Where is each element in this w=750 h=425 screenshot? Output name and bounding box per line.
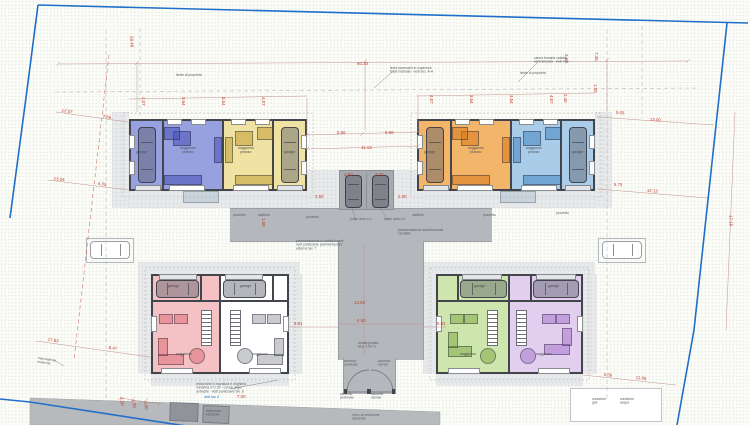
annotation-label: canna fumaria caldaia centralizzata - ve… <box>534 56 569 64</box>
dimension-label: 3.54 <box>181 97 186 106</box>
dimension-label: 2.50 <box>119 397 125 406</box>
annotation-label: linea lucernario in copertura falda incl… <box>390 66 433 74</box>
annotation-label: vedi tav. 8 <box>204 395 219 399</box>
annotation-label: fabbricato esistente <box>206 409 221 417</box>
room-label: soggiorno pranzo <box>180 146 196 154</box>
dimension-label: 4.07 <box>429 95 434 104</box>
annotation-label: caditoia <box>258 213 270 217</box>
room-label: soggiorno <box>252 352 268 356</box>
site-plan: 60.3029.4812.077.6613.044.335.6513.005.7… <box>0 0 750 425</box>
annotation-label: limite di proprieta' <box>520 71 546 75</box>
annotation-label: limite di proprieta' <box>176 73 202 77</box>
dimension-label: 5.56 <box>385 130 394 135</box>
dimension-label: 2.60 <box>398 194 407 199</box>
annotation-label: pozzetto <box>233 213 246 217</box>
annotation-label: muro di recinzione esistente <box>352 413 379 421</box>
dimension-label: 12.07 <box>61 108 73 114</box>
dimension-label: 4.33 <box>97 181 106 187</box>
dimension-label: 17.16 <box>728 215 733 226</box>
room-label: soggiorno pranzo <box>468 146 484 154</box>
annotation-label: pozzetto <box>483 213 496 217</box>
dimension-label: 2.50 <box>375 172 384 177</box>
dimension-label: 1.50 <box>131 399 137 408</box>
dimension-label: 3.54 <box>509 95 514 104</box>
dimension-label: 5.00 <box>143 401 149 410</box>
annotation-label: pozzetto <box>306 215 319 219</box>
room-label: garage <box>572 150 583 154</box>
room-label: soggiorno pranzo <box>526 146 542 154</box>
dimension-label: 13.92 <box>354 300 365 305</box>
annotation-label: posto auto n.1 <box>350 217 371 221</box>
room-label: garage <box>240 284 251 288</box>
dimension-label: 12.12 <box>647 188 658 194</box>
dimension-label: 7.45 <box>594 52 599 61</box>
dimension-label: 5.56 <box>337 130 346 135</box>
dimension-label: 5.65 <box>616 110 625 116</box>
dimension-label: 7.00 <box>237 394 246 399</box>
annotation-label: recinzione in muratura e ringhiera metal… <box>196 382 246 394</box>
annotation-label: contatore gas <box>592 397 606 405</box>
room-label: soggiorno <box>176 352 192 356</box>
annotation-label: contatore acqua <box>620 397 634 405</box>
annotation-label: marciapiede esistente <box>37 356 56 366</box>
dimension-label: 4.50 <box>357 318 366 323</box>
dimension-label: 11.13 <box>361 145 372 150</box>
room-label: garage <box>284 150 295 154</box>
annotation-label: pozzetto <box>556 211 569 215</box>
labels-layer: 60.3029.4812.077.6613.044.335.6513.005.7… <box>0 0 750 425</box>
dimension-label: 3.54 <box>469 95 474 104</box>
dimension-label: 13.00 <box>650 117 661 123</box>
dimension-label: 2.60 <box>315 194 324 199</box>
room-label: garage <box>168 284 179 288</box>
room-label: garage <box>474 284 485 288</box>
annotation-label: posto auto n.2 <box>384 217 405 221</box>
dimension-label: 60.30 <box>357 61 368 66</box>
dimension-label: 4.07 <box>261 97 266 106</box>
annotation-label: caditoia <box>412 213 424 217</box>
room-label: soggiorno <box>536 352 552 356</box>
annotation-label: cancello carraio <box>371 392 383 400</box>
room-label: soggiorno <box>460 352 476 356</box>
dimension-label: 17.83 <box>47 337 59 344</box>
dimension-label: 4.07 <box>549 95 554 104</box>
dimension-label: 3.54 <box>221 97 226 106</box>
room-label: garage <box>136 150 147 154</box>
dimension-label: 8.47 <box>108 345 117 351</box>
dimension-label: 1.50 <box>261 218 266 227</box>
dimension-label: 5.91 <box>437 321 446 326</box>
annotation-label: accesso carraio <box>378 359 390 367</box>
dimension-label: 2.50 <box>344 172 353 177</box>
room-label: soggiorno pranzo <box>238 146 254 154</box>
annotation-label: cancello pedonale <box>340 392 354 400</box>
annotation-label: pavimentazione autobloccante carrabile <box>398 228 443 236</box>
dimension-label: 4.07 <box>141 97 146 106</box>
room-label: garage <box>424 150 435 154</box>
dimension-label: 13.04 <box>53 176 65 182</box>
annotation-label: pavimentazione in autobloccanti - vedi p… <box>296 239 346 251</box>
dimension-label: 5.91 <box>294 321 303 326</box>
dimension-label: 2.40 <box>563 94 568 103</box>
dimension-label: 5.75 <box>614 182 623 188</box>
dimension-label: 1.20 <box>593 84 598 93</box>
room-label: garage <box>548 284 559 288</box>
dimension-label: 5.56 <box>603 372 612 378</box>
dimension-label: 7.66 <box>102 114 111 120</box>
dimension-label: 29.48 <box>129 36 134 47</box>
annotation-label: accesso pedonale <box>344 359 358 367</box>
annotation-label: strada privata larg. 4.50 m <box>358 341 378 349</box>
dimension-label: 11.66 <box>635 375 646 381</box>
